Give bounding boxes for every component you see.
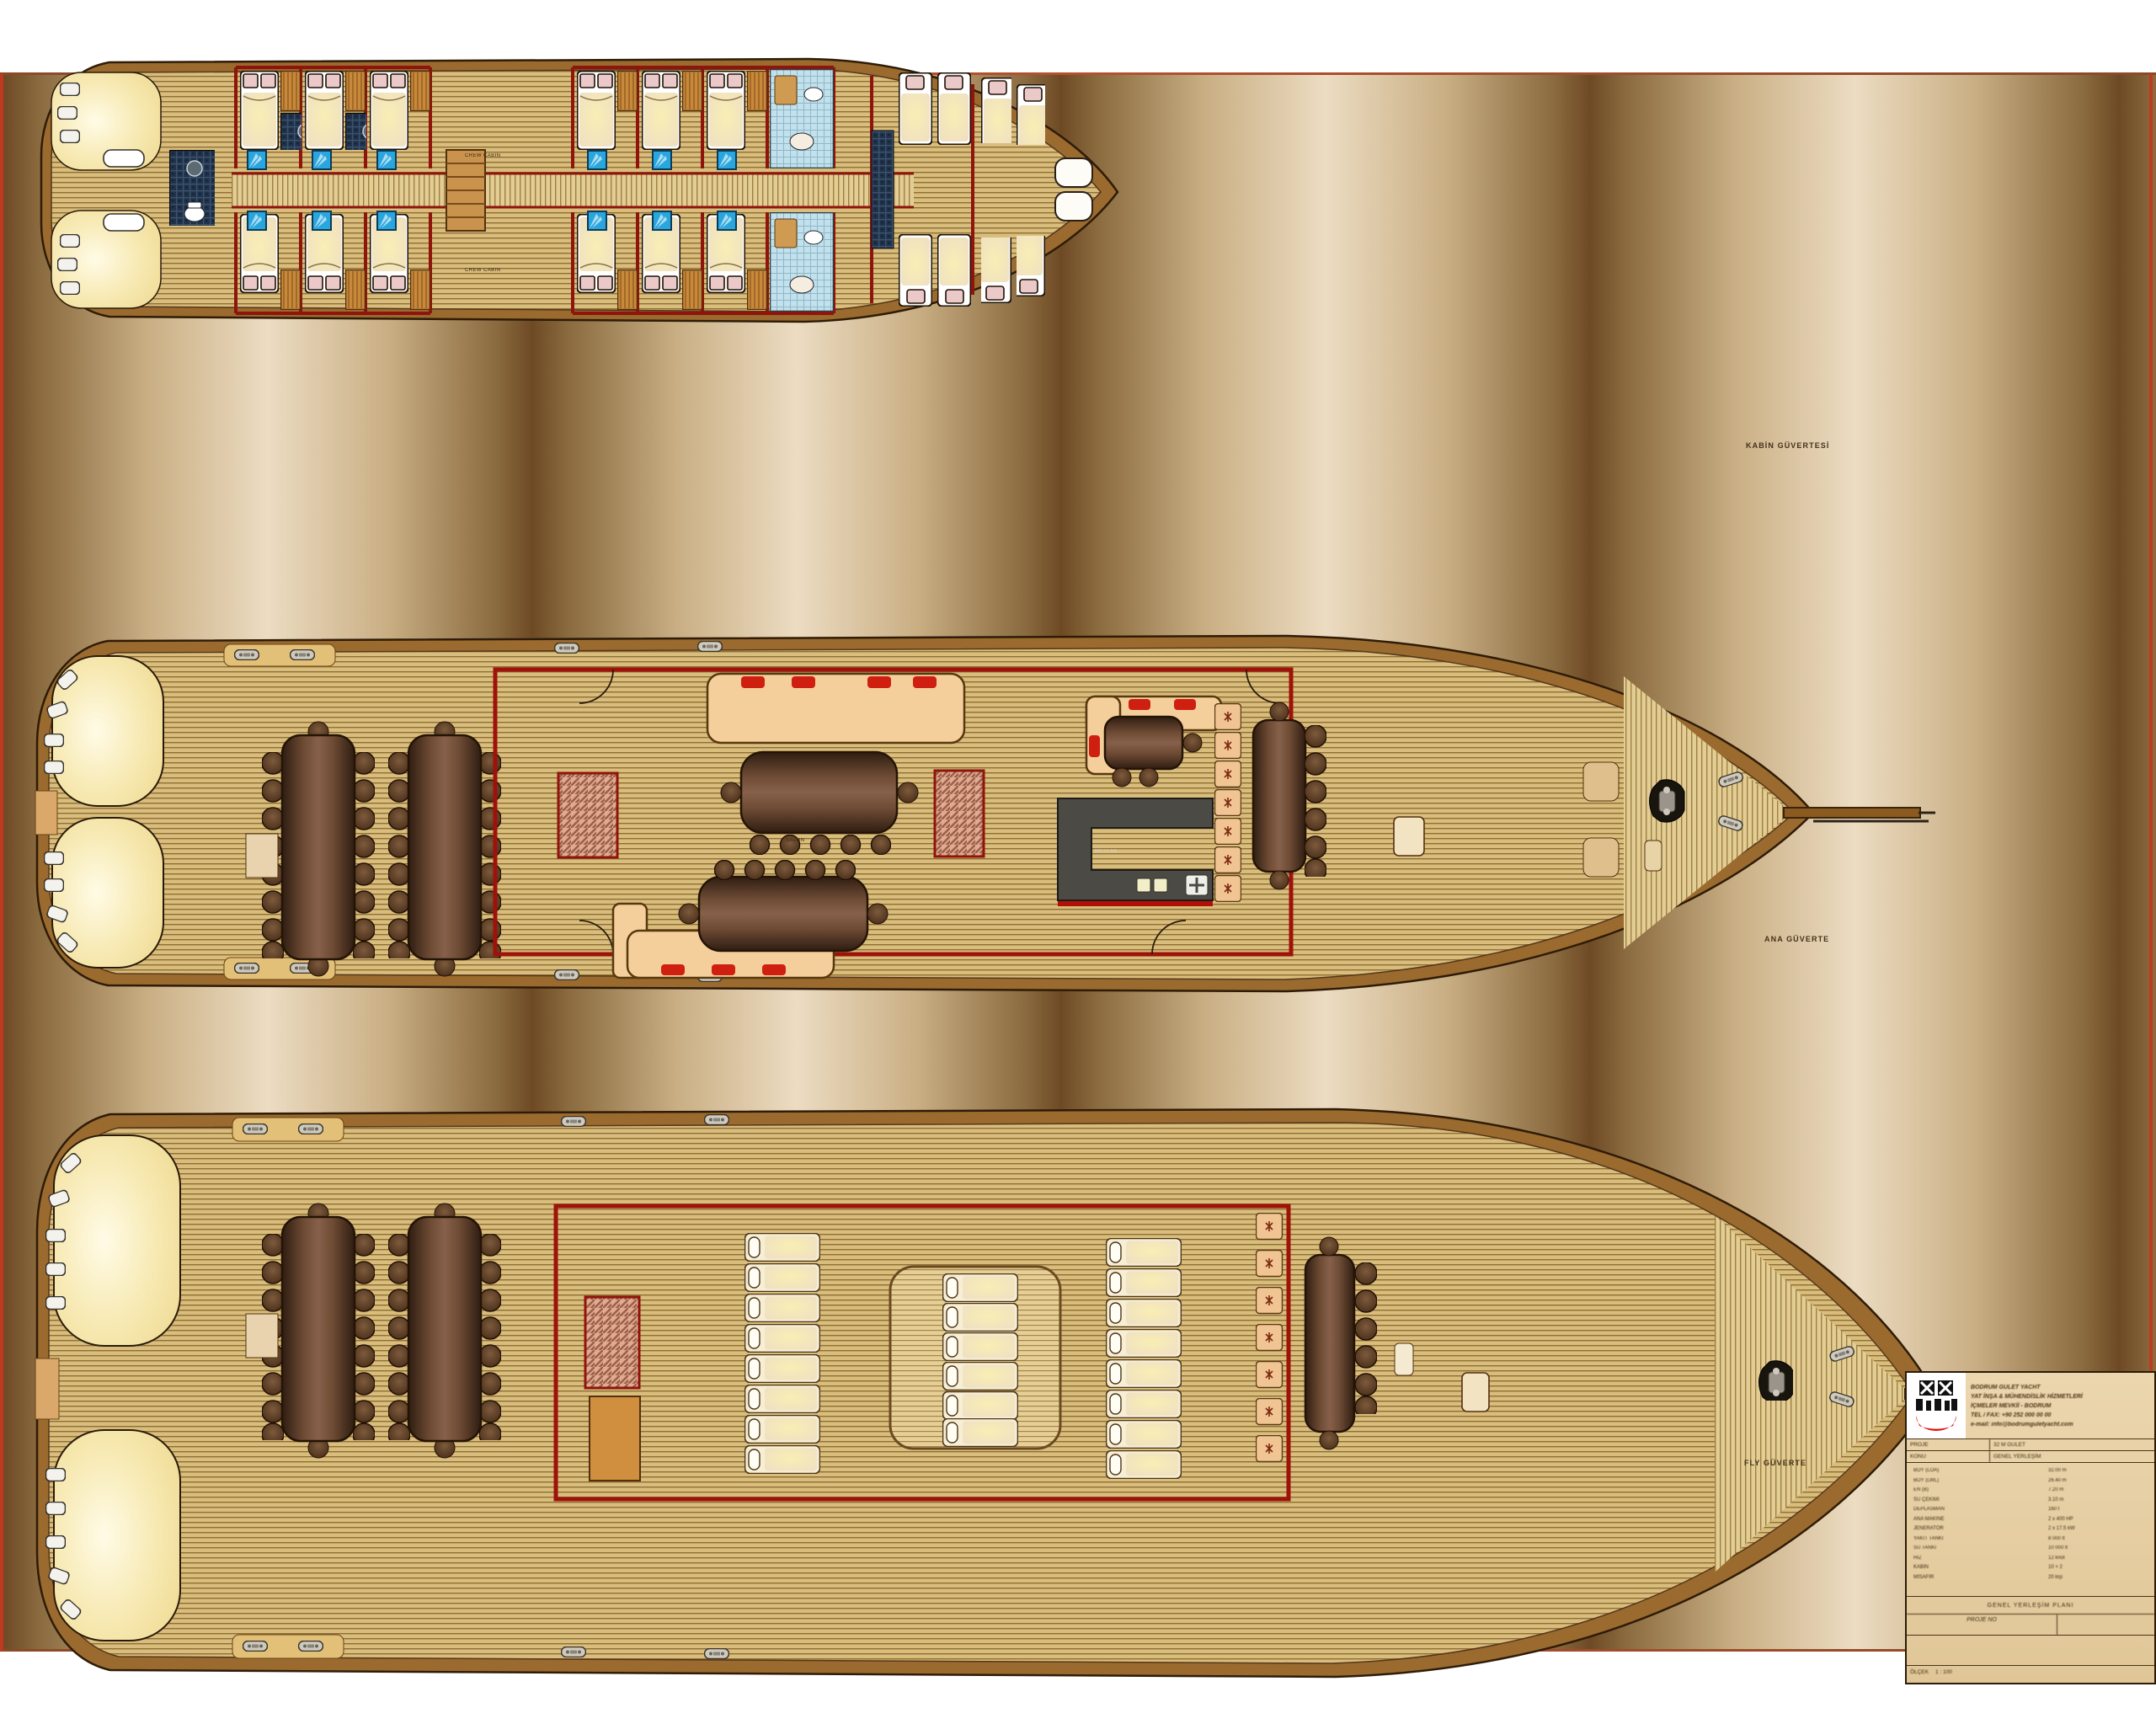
project-row: PROJE 32 M GULET [1907,1439,2154,1451]
spec-value: 2 x 400 HP [2048,1515,2148,1525]
company-line: TEL / FAX: +90 252 000 00 00 [1971,1411,2149,1420]
spec-label: SU ÇEKİMİ [1913,1496,2048,1506]
deck2-bar-bench [1215,704,1241,902]
company-line: İÇMELER MEVKİİ - BODRUM [1971,1401,2149,1411]
drawing-sheet: KABİN GÜVERTESİ ANA GÜVERTE FLY GÜVERTE … [0,0,2156,1724]
spec-value: 7.20 m [2048,1486,2148,1496]
spec-row: SU ÇEKİMİ3.10 m [1913,1496,2148,1506]
spec-value: 26.40 m [2048,1476,2148,1486]
spec-row: ANA MAKİNE2 x 400 HP [1913,1515,2148,1525]
deck3-label: FLY GÜVERTE [1744,1459,1806,1467]
spec-label: BOY (LWL) [1913,1476,2048,1486]
spec-row: MİSAFİR20 kişi [1913,1573,2148,1583]
spec-value: 32.00 m [2048,1466,2148,1476]
spec-value: 10 + 2 [2048,1563,2148,1573]
drawing-caption: GENEL YERLEŞİM PLANI [1907,1597,2154,1615]
deck3-stairs [585,1297,640,1481]
spec-row: JENERATÖR2 x 17.5 kW [1913,1524,2148,1535]
title-block: BODRUM GULET YACHT YAT İNŞA & MÜHENDİSLİ… [1905,1371,2156,1684]
scale-row: ÖLÇEK 1 : 100 [1907,1666,2154,1683]
spec-label: JENERATÖR [1913,1524,2048,1535]
spec-row: YAKIT TANKI8 000 lt [1913,1535,2148,1545]
spec-value: 3.10 m [2048,1496,2148,1506]
deck1-label: KABİN GÜVERTESİ [1746,441,1830,450]
project-value: 32 M GULET [1990,1439,2154,1450]
spec-row: KABİN10 + 2 [1913,1563,2148,1573]
spec-label: SU TANKI [1913,1544,2048,1554]
project-no-row: PROJE NO [1907,1615,2154,1636]
spec-row: HIZ12 knot [1913,1554,2148,1564]
deck2-breakfast-table [1253,702,1326,889]
spec-label: ANA MAKİNE [1913,1515,2048,1525]
deck1-midship-stairs [446,150,485,231]
project-label: PROJE [1907,1439,1990,1450]
deck2-label: ANA GÜVERTE [1764,935,1829,943]
company-line: e-mail: info@bodrumguletyacht.com [1971,1420,2149,1429]
spec-label: MİSAFİR [1913,1573,2048,1583]
project-no-label: PROJE NO [1907,1615,2057,1635]
scale-label: ÖLÇEK [1907,1666,1932,1683]
company-line: BODRUM GULET YACHT [1971,1383,2149,1392]
frame-line-left [0,74,3,1651]
deck1-corridor [232,173,914,207]
signature-area [1907,1636,2154,1666]
company-line: YAT İNŞA & MÜHENDİSLİK HİZMETLERİ [1971,1392,2149,1401]
shipyard-logo-icon [1913,1379,1960,1433]
spec-row: EN (B)7.20 m [1913,1486,2148,1496]
company-info: BODRUM GULET YACHT YAT İNŞA & MÜHENDİSLİ… [1966,1373,2154,1438]
shipyard-logo [1907,1373,1966,1438]
spec-label: HIZ [1913,1554,2048,1564]
deck3-fly-deck-plan [22,1097,2156,1683]
spec-value: 8 000 lt [2048,1535,2148,1545]
scale-value: 1 : 100 [1932,1666,1956,1683]
project-no-value [2057,1615,2154,1635]
spec-value: 12 knot [2048,1554,2148,1564]
spec-row: DEPLASMAN160 t [1913,1505,2148,1515]
galley-label: MUTFAK [1095,849,1118,854]
spec-value: 10 000 lt [2048,1544,2148,1554]
spec-value: 20 kişi [2048,1573,2148,1583]
subject-label: KONU [1907,1451,1990,1462]
crew-cabin-label-bottom: CREW CABIN [465,268,500,273]
spec-row: BOY (LOA)32.00 m [1913,1466,2148,1476]
deck3-sunbed-platform [890,1267,1060,1449]
spec-label: YAKIT TANKI [1913,1535,2048,1545]
subject-row: KONU GENEL YERLEŞİM [1907,1451,2154,1463]
subject-value: GENEL YERLEŞİM [1990,1451,2154,1462]
title-block-header: BODRUM GULET YACHT YAT İNŞA & MÜHENDİSLİ… [1907,1373,2154,1439]
spec-value: 160 t [2048,1505,2148,1515]
spec-label: DEPLASMAN [1913,1505,2048,1515]
spec-label: KABİN [1913,1563,2048,1573]
spec-label: BOY (LOA) [1913,1466,2048,1476]
crew-cabin-label-top: CREW CABIN [465,153,500,158]
deck2-main-deck-plan [24,626,1952,1001]
salon-label: SALON [786,838,804,843]
deck3-bench-column [1257,1214,1283,1462]
spec-label: EN (B) [1913,1486,2048,1496]
specifications-table: BOY (LOA)32.00 m BOY (LWL)26.40 m EN (B)… [1907,1463,2154,1597]
spec-row: BOY (LWL)26.40 m [1913,1476,2148,1486]
spec-row: SU TANKI10 000 lt [1913,1544,2148,1554]
spec-value: 2 x 17.5 kW [2048,1524,2148,1535]
deck1-cabin-deck-plan [29,51,1124,328]
